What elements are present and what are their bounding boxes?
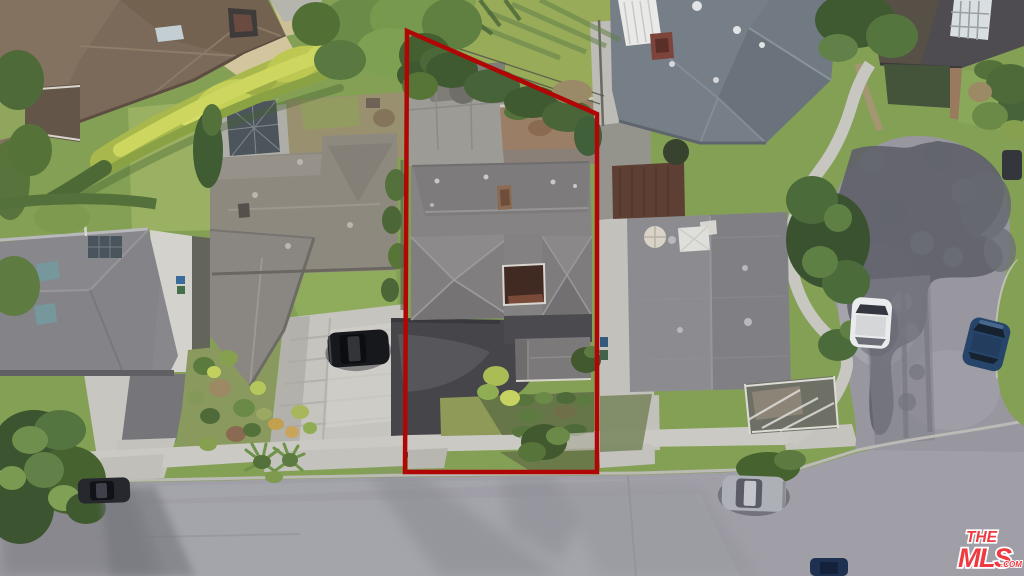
svg-text:.COM: .COM (1001, 560, 1022, 569)
